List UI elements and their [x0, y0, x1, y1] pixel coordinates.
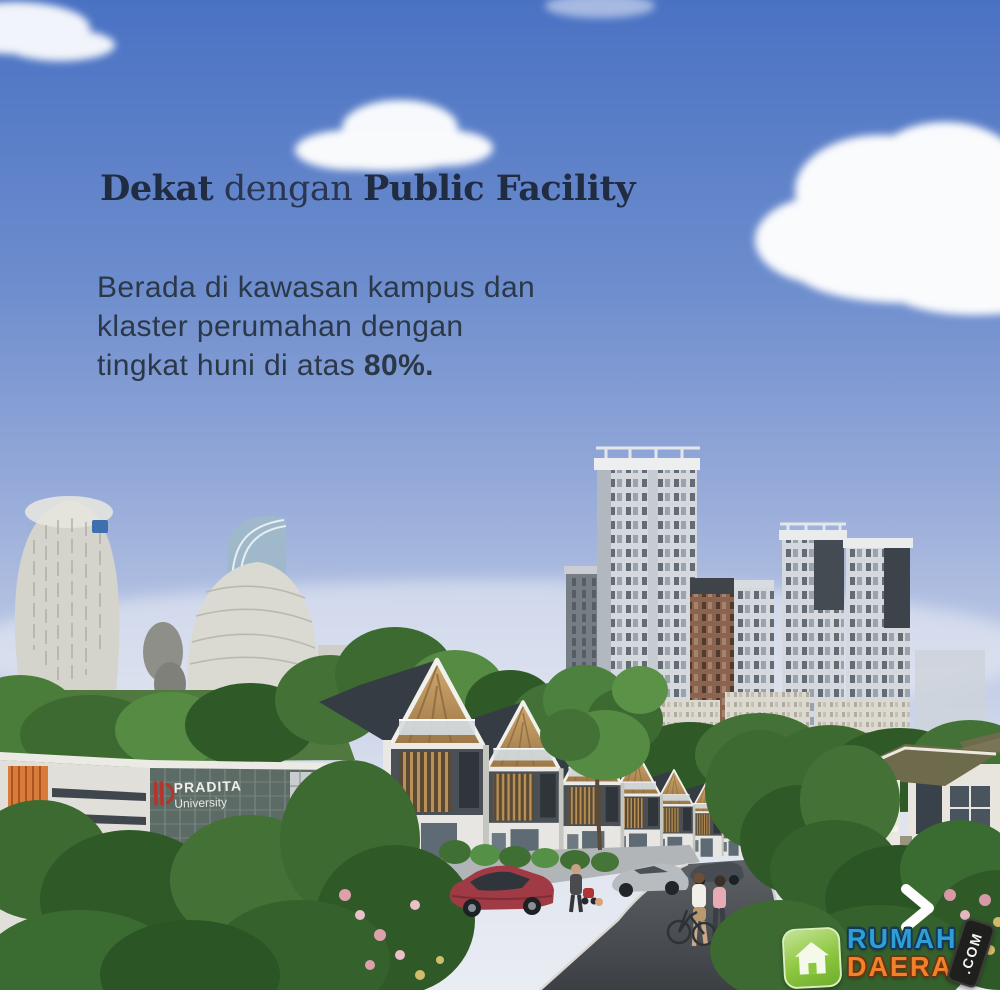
headline-regular: dengan — [213, 169, 363, 209]
body-line-1: Berada di kawasan kampus dan — [97, 268, 535, 307]
headline-bold-2: Public Facility — [363, 168, 635, 209]
body-line-2: klaster perumahan dengan — [97, 307, 535, 346]
campus-sign-title: PRADITA — [173, 777, 242, 795]
body-line-3: tingkat huni di atas 80%. — [97, 346, 535, 385]
scene-illustration: PRADITA University — [0, 0, 1000, 990]
campus-sign-subtitle: University — [174, 795, 227, 811]
headline: Dekat dengan Public Facility — [100, 168, 635, 209]
house-icon — [781, 927, 842, 990]
rumahdaerah-watermark: RUMAH DAERAH .COM — [779, 920, 1000, 990]
occupancy-rate: 80%. — [364, 349, 434, 382]
brand-tld: .COM — [957, 930, 985, 975]
headline-bold-1: Dekat — [100, 168, 213, 209]
body-copy: Berada di kawasan kampus dan klaster per… — [97, 268, 535, 385]
promo-slide: PRADITA University — [0, 0, 1000, 990]
